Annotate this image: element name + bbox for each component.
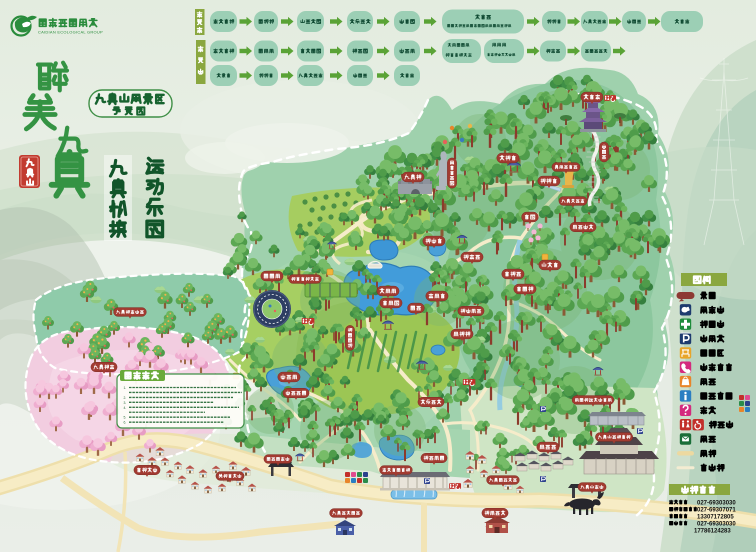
svg-text:CAIDIAN ECOLOGICAL GROUP: CAIDIAN ECOLOGICAL GROUP	[38, 30, 103, 35]
svg-text:5.: 5.	[124, 416, 127, 420]
svg-text:027-69303030: 027-69303030	[697, 501, 736, 507]
svg-text:3.: 3.	[124, 401, 127, 405]
svg-text:027-69303030: 027-69303030	[697, 522, 736, 528]
svg-text:027-69307071: 027-69307071	[697, 508, 736, 514]
svg-text:4.: 4.	[124, 406, 127, 410]
svg-text:2.: 2.	[124, 396, 127, 400]
svg-text:17786124283: 17786124283	[694, 529, 731, 535]
svg-text:1.: 1.	[124, 386, 127, 390]
svg-text:6.: 6.	[124, 421, 127, 425]
svg-text:13307172805: 13307172805	[697, 515, 734, 521]
